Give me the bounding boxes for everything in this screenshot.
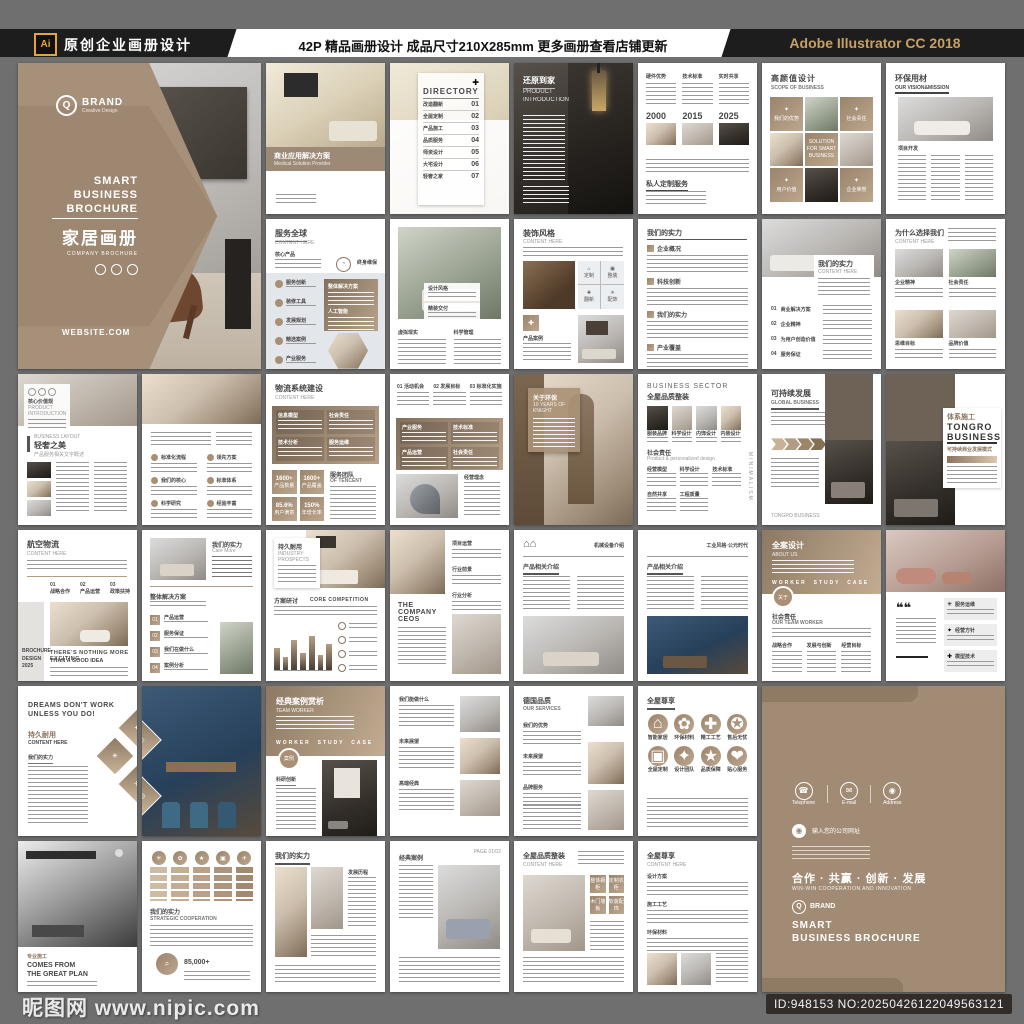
bullet-item: 经验丰富	[207, 500, 253, 507]
text-lines	[349, 637, 377, 643]
page-directory: ✚ DIRECTORY 改造翻新01 全屋定制02 产品施工03 品质服务04 …	[390, 63, 509, 214]
gray-sofa	[446, 919, 490, 939]
card-title: 经营方针	[955, 627, 975, 634]
col-head: 技术标准	[682, 73, 712, 80]
page-title-en: OUR VISION&MISSION	[895, 85, 949, 94]
dir-label: 轻奢之家	[423, 173, 443, 180]
row-item: 未来展望	[399, 738, 500, 774]
divider	[647, 556, 748, 557]
page-decor-style: 装饰风格 CONTENT HERE ⌂定制 ▣整装 ✚翻新 ✳配饰 ✚ 产品案例	[514, 219, 633, 370]
mini-bar-chart	[274, 622, 332, 671]
page-title-en: GLOBAL BUSINESS	[771, 400, 819, 410]
circle-grid: ⌂智能家居 ✿环保材料 ✚精工工艺 ✪售后无忧 ▣全屋定制 ✦设计团队 ★品质保…	[646, 714, 749, 773]
page-durability-chart: 持久耐用 INDUSTRY PROSPECTS 方案研讨 CORE COMPET…	[266, 530, 385, 681]
top-banner: Ai 原创企业画册设计 42P 精品画册设计 成品尺寸210X285mm 更多画…	[0, 29, 1024, 57]
tool-icon: ✚	[701, 714, 721, 734]
block-head: 工程质量	[680, 491, 709, 498]
text-lines	[56, 462, 89, 514]
head-num: 01	[397, 384, 403, 390]
text-lines	[896, 618, 936, 644]
thumb	[721, 406, 742, 430]
cell-text: 社会责任	[846, 115, 866, 122]
panel-label: 信息模型	[278, 412, 322, 419]
title: 全屋尊享	[647, 696, 675, 710]
directory-item: 全屋定制02	[423, 111, 479, 123]
grid-cell-label: ✦用户价值	[770, 168, 803, 202]
text-lines	[533, 418, 575, 448]
wardrobe-photo2	[311, 867, 343, 929]
circle-label: 设计团队	[673, 766, 697, 773]
page-global-service: 服务全球 CONTENT HERE 核心产品 服务创新 装修工具 发展规划 精选…	[266, 219, 385, 370]
quad-cell: ✚翻新	[578, 285, 601, 309]
clock-icon: ◔	[336, 257, 351, 272]
title-band: 商业应用解决方案 Medical Solution Provider	[266, 147, 385, 171]
tab: STUDY	[318, 740, 345, 746]
section: 产业覆盖	[647, 343, 748, 370]
chair	[162, 802, 180, 828]
pill-col: ✳	[150, 851, 167, 901]
image-id-badge: ID:948153 NO:20250426122049563121	[766, 994, 1012, 1014]
text-lines	[329, 420, 373, 432]
sub-head: 发展历程	[348, 869, 368, 876]
stat-tile: 1600+产品数量	[272, 470, 297, 494]
text-lines	[428, 292, 476, 299]
head-num: 03	[470, 384, 476, 390]
text-lines	[349, 623, 377, 629]
page-product-intro-dark: 还原到家 PRODUCT INTRODUCTION	[514, 63, 633, 214]
head-label: 标准化实施	[477, 384, 502, 390]
page-strategic-cooperation: ✳ ✿ ★ ▣ ✈ 我们的实力 STRATEGIC COOPERATION ⌕ …	[142, 841, 261, 992]
brand-sub: Creative Design	[82, 108, 123, 114]
contact-row: ☎Telephone ✉E-mail ◉Address	[792, 782, 901, 806]
small-photo	[647, 953, 677, 985]
heart-icon: ❤	[727, 746, 747, 766]
wardrobe-photo	[275, 867, 307, 957]
leaf-icon: ✿	[674, 714, 694, 734]
badge-icon	[275, 337, 283, 345]
year-photo	[646, 123, 676, 145]
panel-title1: 整体解决方案	[328, 283, 374, 290]
thumb-label: 内饰设计	[696, 430, 717, 437]
badge-icon	[275, 280, 283, 288]
mail-icon: ✉	[840, 782, 858, 800]
text-lines	[150, 601, 206, 609]
vertical-caption: MINIMALISM	[747, 452, 753, 502]
lamp	[592, 71, 606, 111]
text-lines	[275, 259, 321, 269]
title-cn: 持久耐用	[28, 730, 56, 740]
tile-icon	[647, 311, 654, 318]
text-lines	[523, 115, 565, 181]
bullet-lines	[338, 622, 377, 672]
head-col: 01 活动机会	[397, 383, 429, 408]
tile-icon	[647, 344, 654, 351]
nipic-watermark: 昵图网 www.nipic.com	[22, 992, 260, 1022]
page-bedroom-overlays: 设计风格 精装交付 虚拟现实 科学管理	[390, 219, 509, 370]
quote-line2: THAN A GOOD IDEA	[50, 658, 103, 664]
col: 硬件优势	[646, 73, 676, 105]
stacked-bars	[171, 867, 188, 901]
text-lines	[523, 957, 624, 985]
chair	[218, 802, 236, 828]
shield-icon: ✪	[727, 714, 747, 734]
title-cn: 全屋尊享	[647, 851, 675, 861]
thumb-row: 服装品牌 科学设计 内饰设计 内装设计	[647, 406, 741, 443]
text-lines	[647, 938, 748, 952]
card-title: 服务运维	[955, 601, 975, 608]
bullet-col: 领先方案 标准体系 经验丰富	[207, 454, 253, 519]
brand-word2: BUSINESS	[947, 432, 997, 444]
text-lines	[399, 705, 454, 729]
ottoman	[942, 572, 972, 584]
text-lines	[792, 846, 870, 860]
row-head: 未来展望	[399, 738, 454, 745]
spiral-stairs	[410, 484, 440, 514]
text-lines	[719, 83, 749, 105]
text-lines	[286, 343, 316, 347]
list-item: 发展规划	[275, 317, 319, 328]
year: 2025	[719, 111, 749, 121]
cell-text: 用户价值	[776, 186, 796, 193]
text-lines	[931, 155, 959, 201]
sidebar-caption: BROCHUREDESIGN2025	[22, 648, 51, 671]
text-lines	[818, 278, 870, 296]
bed	[894, 499, 938, 517]
page-title-cn: 我们的实力	[818, 259, 870, 269]
section-head: 品牌服务	[523, 784, 581, 791]
label: 企业精神	[895, 279, 943, 286]
tools-icon: ✚	[947, 653, 952, 660]
stacked-bars	[150, 867, 167, 901]
sofa-photo	[898, 97, 993, 141]
page-title-cn: 高颜值设计	[771, 73, 816, 84]
item-label: 商业解决方案	[781, 306, 819, 313]
text-lines	[672, 437, 693, 443]
header-band: 经典案例赏析 TEAM WORKER WORKER STUDY CASE	[266, 686, 385, 756]
circle-item: ▣全屋定制	[646, 746, 670, 773]
text-lines	[949, 288, 997, 300]
dir-label: 师资设计	[423, 149, 443, 156]
panel-cell: 服务运维	[327, 437, 375, 461]
contact-label: E-mail	[840, 800, 858, 806]
list-item: 服务创新	[275, 279, 319, 290]
thumb	[27, 481, 51, 497]
step-label: 政策扶持	[110, 588, 130, 595]
numbered-list: 01商业解决方案 02企业精神 03为用户创造价值 04服务保证	[771, 305, 872, 359]
year-photo	[719, 123, 749, 145]
title-en: OUR SERVICES	[523, 706, 561, 712]
sub-heading: 项目开发	[898, 145, 918, 152]
text-lines	[278, 565, 316, 583]
thumb	[647, 406, 668, 430]
pin-icon: ◉	[792, 824, 806, 838]
title-cn: 德国品质	[523, 696, 551, 706]
bench	[328, 821, 348, 829]
page-dreams: DREAMS DON'T WORK UNLESS YOU DO! 持久耐用 CO…	[18, 686, 137, 837]
row-photo	[460, 738, 500, 774]
text-lines	[453, 432, 497, 442]
cap2: DESIGN	[22, 656, 41, 662]
dir-label: 改造翻新	[423, 101, 443, 108]
page-title-en1: PRODUCT	[523, 89, 553, 95]
item-num: 01	[771, 306, 777, 312]
text-lines	[398, 339, 446, 365]
list-item: 04服务保证	[771, 350, 872, 359]
staircase-photo	[396, 474, 458, 518]
panel-label: 社会责任	[453, 449, 497, 456]
text-lines	[523, 343, 571, 363]
row-item: 我们能做什么	[399, 696, 500, 732]
directory-item: 轻奢之家07	[423, 171, 479, 182]
text-lines	[399, 957, 500, 985]
list-item: 装修工具	[275, 298, 319, 309]
table	[663, 656, 707, 668]
page-air-logistics: BROCHUREDESIGN2025 航空物流 CONTENT HERE 01战…	[18, 530, 137, 681]
text-lines	[151, 486, 197, 496]
title-en: CONTENT HERE	[28, 740, 67, 746]
dot-icon	[338, 636, 346, 644]
text-lines	[286, 362, 316, 366]
photo-bottom	[588, 790, 624, 830]
badge: 案例	[278, 748, 300, 770]
dot-icon	[338, 622, 346, 630]
back-title1: SMART	[792, 920, 833, 931]
num-tile: 04	[150, 663, 160, 673]
circle-item: ✦设计团队	[673, 746, 697, 773]
stacked-bars	[236, 867, 253, 901]
text-lines	[647, 437, 668, 443]
quad-label: 翻新	[584, 296, 594, 303]
slogan-en: WIN-WIN COOPERATION AND INNOVATION	[792, 886, 912, 892]
text-lines	[523, 247, 623, 257]
text-lines	[150, 925, 253, 947]
circle-item: ✚精工工艺	[699, 714, 723, 741]
text-lines	[647, 473, 676, 487]
year-col: 2015	[682, 111, 712, 145]
text-lines	[647, 288, 748, 306]
head-num: 02	[433, 384, 439, 390]
text-lines	[286, 305, 316, 309]
thumb-item: 科学设计	[672, 406, 693, 443]
card-title: 模型技术	[955, 653, 975, 660]
tab: CASE	[847, 580, 869, 586]
block: 自然共享	[647, 491, 676, 512]
text-lines	[841, 651, 871, 673]
stat-tile: 85.6%用户满意	[272, 497, 297, 521]
section-title: 科技创新	[657, 277, 681, 286]
title-bar	[27, 436, 30, 452]
dot-icon	[207, 500, 214, 507]
thumb	[27, 462, 51, 478]
service-sections: 我们的优势 未来展望 品牌服务	[523, 722, 581, 809]
directory-item: 师资设计05	[423, 147, 479, 159]
page-classic-cases: 经典案例赏析 TEAM WORKER WORKER STUDY CASE 案例 …	[266, 686, 385, 837]
page-why-us: 为什么选择我们 CONTENT HERE 企业精神 社会责任 思维目标 品牌价值	[886, 219, 1005, 370]
stacked-bars	[214, 867, 231, 901]
title-cn: 全案设计	[772, 540, 804, 551]
dot-icon	[207, 477, 214, 484]
text-lines	[274, 606, 377, 616]
quad-label: 定制	[584, 272, 594, 279]
step: 02产品运营	[80, 582, 100, 595]
group-head: 行业前景	[452, 566, 501, 573]
page-title-en: CONTENT HERE	[275, 395, 314, 401]
star-icon: ★	[195, 851, 209, 865]
text-lines	[647, 354, 748, 370]
col: 战略合作	[772, 642, 802, 673]
text-lines	[947, 635, 994, 643]
section-head: 未来展望	[523, 753, 581, 760]
text-lines	[772, 651, 802, 673]
col: 经营目标	[841, 642, 871, 673]
page-solution-list: 我们的实力 Care More 整体解决方案 01产品运营 02服务保证 03我…	[142, 530, 261, 681]
text-lines	[151, 509, 197, 519]
dot-icon	[151, 477, 158, 484]
title-cn: 全屋品质整装	[647, 392, 689, 402]
brand-word1: TONGRO	[947, 422, 997, 432]
sofa	[896, 568, 936, 584]
tab: CASE	[351, 740, 373, 746]
text-lines	[452, 601, 501, 613]
address-row: ◉ 输入您的公司网址	[792, 824, 860, 838]
divider	[870, 785, 871, 803]
page-solution: 商业应用解决方案 Medical Solution Provider	[266, 63, 385, 214]
corner-tab-bottom	[762, 978, 903, 992]
stat-tiles: 1600+产品数量 1600+产品覆盖 85.6%用户满意 150%年增长率	[272, 470, 324, 521]
text-lines	[947, 661, 994, 669]
panel-label: 社会责任	[329, 412, 373, 419]
chart-bar	[291, 640, 297, 670]
thumb-item: 内装设计	[721, 406, 742, 443]
list-item: 03我们在做什么	[150, 646, 214, 657]
dining-photo	[647, 616, 748, 674]
title-cn: 我们的实力	[150, 907, 180, 916]
text-lines	[399, 789, 454, 813]
section-cn: 方案研讨	[274, 596, 298, 605]
text-lines	[949, 349, 997, 361]
panel-label: 产业服务	[402, 424, 446, 431]
gear-icon: ✳	[947, 601, 952, 608]
lead-label: 核心产品	[275, 251, 295, 258]
adobe-illustrator-icon: Ai	[34, 33, 57, 56]
text-lines	[27, 981, 97, 987]
text-lines	[948, 228, 996, 242]
col-head: 虚拟现实	[398, 329, 446, 336]
section: 我们的实力	[647, 310, 748, 339]
col: 实时共享	[719, 73, 749, 105]
sofa	[531, 929, 571, 943]
circle-label: 环保材料	[673, 734, 697, 741]
interior-photo	[452, 614, 501, 674]
pill-col: ✈	[236, 851, 253, 901]
title-en: BUSINESS SECTOR	[647, 383, 728, 390]
text-lines	[646, 159, 749, 175]
row-photo	[460, 696, 500, 732]
title-cn: 专业施工	[27, 953, 47, 960]
cover-subtitle: COMPANY BROCHURE	[52, 251, 138, 257]
block-head: 技术标准	[712, 466, 741, 473]
quad-label: 整装	[607, 272, 617, 279]
sofa	[329, 121, 377, 141]
text-lines	[184, 971, 250, 983]
contact-item: ☎Telephone	[792, 782, 815, 806]
brand-name: BRAND	[82, 97, 123, 108]
text-lines	[647, 576, 694, 610]
item-label: 产品运营	[164, 614, 208, 621]
col-head: 战略合作	[772, 642, 802, 649]
bedroom-photo	[825, 440, 873, 504]
section-title: 产品相关介绍	[523, 562, 559, 575]
card: ✚模型技术	[944, 650, 997, 672]
dir-num: 04	[471, 137, 479, 144]
step: 01战略合作	[50, 582, 70, 595]
tabs: WORKER STUDY CASE	[772, 580, 869, 586]
divider	[27, 576, 127, 577]
search-icon: ⌕	[156, 953, 178, 975]
page-logistics: 物流系统建设 CONTENT HERE 信息模型 社会责任 技术分析 服务运维 …	[266, 374, 385, 525]
bed	[314, 570, 358, 584]
text-lines	[647, 910, 748, 924]
item-label: 为用户创造价值	[781, 336, 819, 343]
skyline-icon: ⌂⌂	[523, 538, 536, 550]
dark-block	[825, 374, 873, 440]
page-title-cn: 为什么选择我们	[895, 228, 944, 238]
dir-num: 05	[471, 149, 479, 156]
list-item: 02服务保证	[150, 630, 214, 641]
section-title: 企业概况	[657, 244, 681, 253]
grid-cell-label: ✦社会责任	[840, 97, 873, 131]
text-lines	[523, 186, 569, 206]
tag: 木门墙板	[590, 896, 606, 914]
item-label: 服务创新	[286, 279, 316, 286]
text-lines	[278, 447, 322, 459]
text-lines	[398, 627, 446, 667]
quad-cell: ✳配饰	[601, 285, 624, 309]
counter	[166, 762, 236, 772]
text-lines	[712, 473, 741, 487]
col: 科学管理	[454, 329, 502, 365]
head-label: 活动机会	[404, 384, 424, 390]
dot-icon	[151, 454, 158, 461]
page-title-en2: INTRODUCTION	[523, 97, 569, 103]
circle-label: 精工工艺	[699, 734, 723, 741]
title-en1: COMES FROM	[27, 962, 75, 969]
page-premium-circles: 全屋尊享 ⌂智能家居 ✿环保材料 ✚精工工艺 ✪售后无忧 ▣全屋定制 ✦设计团队…	[638, 686, 757, 837]
brand-name: BRAND	[810, 903, 835, 910]
overlay-title: 关于环保	[533, 393, 575, 402]
page-professional-construction: 专业施工 COMES FROM THE GREAT PLAN	[18, 841, 137, 992]
directory-list: 改造翻新01 全屋定制02 产品施工03 品质服务04 师资设计05 大宅设计0…	[423, 99, 479, 182]
top-photo	[142, 374, 261, 424]
thumb-column	[27, 462, 51, 516]
section-head: 施工工艺	[647, 901, 748, 908]
section-head: 环保材料	[647, 929, 748, 936]
stat-label: 年增长率	[302, 509, 322, 516]
text-lines	[164, 669, 208, 673]
sections: 企业概况 科技创新 我们的实力 产业覆盖	[647, 244, 748, 370]
text-lines	[276, 716, 354, 732]
text-lines	[647, 255, 748, 273]
text-lines	[207, 463, 253, 473]
top-right-caption: 工业风格·公元时代	[706, 542, 748, 549]
circle-item: ❤贴心服务	[726, 746, 750, 773]
panel-title2: 人工智能	[328, 308, 374, 315]
bedroom-photo	[578, 315, 624, 363]
grid-photo	[805, 168, 838, 202]
page-title-en: Medical Solution Provider	[274, 161, 377, 167]
cover-line2: BUSINESS	[52, 189, 138, 203]
bath-photo	[50, 602, 128, 646]
